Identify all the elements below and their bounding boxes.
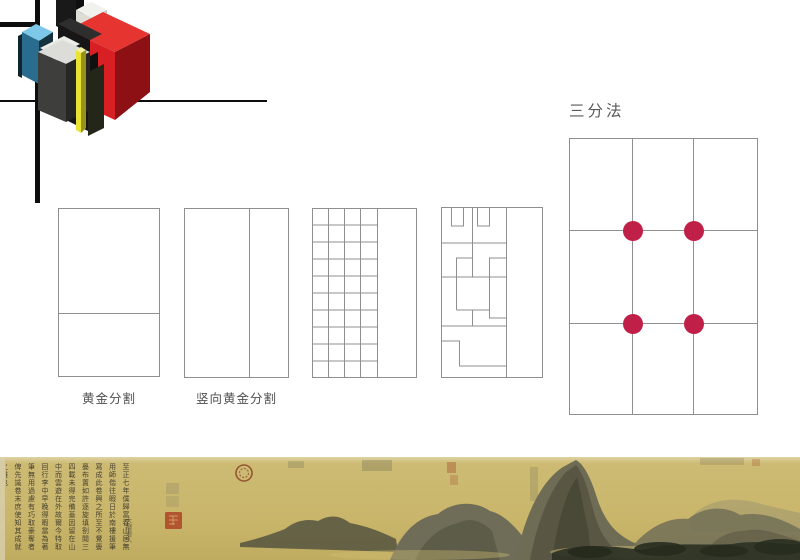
power-point-dot: [684, 314, 704, 334]
thirds-hline-1: [570, 230, 757, 231]
golden-section-divider-horizontal: [59, 313, 159, 314]
diagram-lattice-subdivision: [441, 207, 543, 378]
diagram-grid-subdivision: [312, 208, 417, 378]
thirds-vline-1: [632, 139, 633, 414]
handscroll-painting: 至正七年僕歸富春山居無用師偕往暇日於南樓援筆寫成此卷興之所至不覺亹亹布置如許逐旋…: [0, 457, 800, 560]
slide-canvas: 黄金分割 竖向黄金分割: [0, 0, 800, 560]
diagram-golden-section-horizontal: [58, 208, 160, 377]
rule-of-thirds-title: 三分法: [569, 99, 625, 121]
caption-golden-section: 黄金分割: [58, 388, 160, 407]
power-point-dot: [623, 314, 643, 334]
power-point-dot: [623, 221, 643, 241]
signature-column: 大癡道人: [124, 517, 132, 557]
caption-golden-section-vertical: 竖向黄金分割: [184, 388, 289, 407]
golden-section-divider-vertical: [249, 209, 250, 377]
lattice-lines: [441, 207, 543, 378]
diagram-golden-section-vertical: [184, 208, 289, 378]
colophon-calligraphy: 至正七年僕歸富春山居無用師偕往暇日於南樓援筆寫成此卷興之所至不覺亹亹布置如許逐旋…: [6, 463, 132, 558]
isometric-blocks-logo: [18, 0, 153, 140]
thirds-vline-2: [693, 139, 694, 414]
power-point-dot: [684, 221, 704, 241]
grid-lines: [312, 208, 417, 378]
diagram-rule-of-thirds: [569, 138, 758, 415]
thirds-hline-2: [570, 323, 757, 324]
